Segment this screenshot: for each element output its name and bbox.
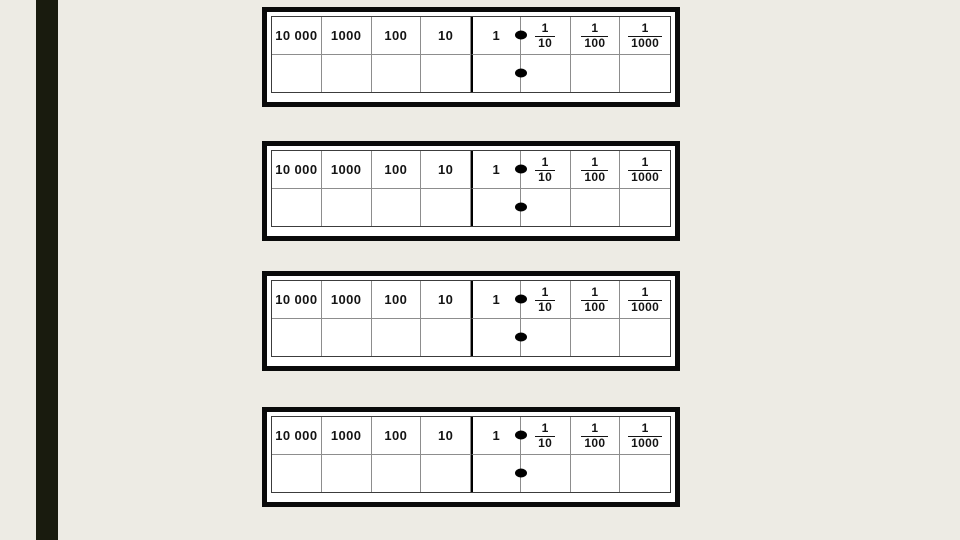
- header-cell-10000: 10 000: [272, 151, 322, 189]
- header-cell-1000: 1000: [322, 17, 372, 55]
- header-cell-hundredths: 1 100: [571, 17, 621, 55]
- header-cell-thousandths: 1 1000: [620, 417, 670, 455]
- header-cell-1: 1: [471, 281, 521, 319]
- fraction-1-100: 1 100: [581, 422, 608, 451]
- header-row: 10 000 1000 100 10 1 1 10 1 100: [272, 281, 670, 319]
- answer-cell: [322, 319, 372, 357]
- answer-cell: [272, 55, 322, 93]
- answer-cell: [620, 189, 670, 227]
- place-value-chart-2: 10 000 1000 100 10 1 1 10 1 100: [262, 141, 680, 241]
- decimal-point-icon: [515, 202, 527, 211]
- header-cell-thousandths: 1 1000: [620, 281, 670, 319]
- fraction-1-10: 1 10: [535, 286, 555, 315]
- answer-cell: [471, 455, 521, 493]
- header-cell-100: 100: [372, 281, 422, 319]
- header-cell-hundredths: 1 100: [571, 417, 621, 455]
- header-cell-10000: 10 000: [272, 281, 322, 319]
- header-cell-100: 100: [372, 151, 422, 189]
- answer-cell: [421, 189, 471, 227]
- fraction-1-1000: 1 1000: [628, 422, 662, 451]
- answer-cell: [372, 455, 422, 493]
- fraction-1-100: 1 100: [581, 156, 608, 185]
- answer-cell: [322, 55, 372, 93]
- fraction-1-1000: 1 1000: [628, 286, 662, 315]
- header-row: 10 000 1000 100 10 1 1 10 1 100: [272, 17, 670, 55]
- header-cell-1: 1: [471, 417, 521, 455]
- answer-cell: [571, 55, 621, 93]
- header-cell-10: 10: [421, 281, 471, 319]
- answer-cell: [322, 189, 372, 227]
- answer-cell: [372, 55, 422, 93]
- answer-cell: [571, 189, 621, 227]
- header-cell-100: 100: [372, 417, 422, 455]
- answer-cell: [372, 189, 422, 227]
- header-cell-tenths: 1 10: [521, 281, 571, 319]
- place-value-table-3: 10 000 1000 100 10 1 1 10 1 100: [271, 280, 671, 357]
- place-value-chart-4: 10 000 1000 100 10 1 1 10 1 100: [262, 407, 680, 507]
- header-row: 10 000 1000 100 10 1 1 10 1 100: [272, 151, 670, 189]
- header-cell-tenths: 1 10: [521, 151, 571, 189]
- decimal-point-icon: [515, 295, 527, 304]
- answer-row: [272, 319, 670, 357]
- answer-cell: [571, 319, 621, 357]
- answer-cell: [272, 189, 322, 227]
- header-cell-1: 1: [471, 151, 521, 189]
- fraction-1-1000: 1 1000: [628, 22, 662, 51]
- place-value-table-4: 10 000 1000 100 10 1 1 10 1 100: [271, 416, 671, 493]
- fraction-1-1000: 1 1000: [628, 156, 662, 185]
- answer-cell: [322, 455, 372, 493]
- place-value-table-1: 10 000 1000 100 10 1 1 10 1 100: [271, 16, 671, 93]
- answer-cell: [372, 319, 422, 357]
- fraction-1-10: 1 10: [535, 22, 555, 51]
- header-cell-10: 10: [421, 417, 471, 455]
- answer-cell: [521, 319, 571, 357]
- header-cell-tenths: 1 10: [521, 417, 571, 455]
- decimal-point-icon: [515, 31, 527, 40]
- answer-cell: [272, 319, 322, 357]
- fraction-1-10: 1 10: [535, 422, 555, 451]
- place-value-table-2: 10 000 1000 100 10 1 1 10 1 100: [271, 150, 671, 227]
- header-cell-1: 1: [471, 17, 521, 55]
- header-cell-hundredths: 1 100: [571, 281, 621, 319]
- header-cell-10000: 10 000: [272, 17, 322, 55]
- decimal-point-icon: [515, 68, 527, 77]
- place-value-chart-3: 10 000 1000 100 10 1 1 10 1 100: [262, 271, 680, 371]
- header-cell-1000: 1000: [322, 151, 372, 189]
- fraction-1-10: 1 10: [535, 156, 555, 185]
- answer-row: [272, 455, 670, 493]
- header-row: 10 000 1000 100 10 1 1 10 1 100: [272, 417, 670, 455]
- answer-cell: [521, 455, 571, 493]
- decimal-point-icon: [515, 468, 527, 477]
- header-cell-thousandths: 1 1000: [620, 151, 670, 189]
- answer-cell: [521, 189, 571, 227]
- place-value-chart-1: 10 000 1000 100 10 1 1 10 1 100: [262, 7, 680, 107]
- answer-cell: [571, 455, 621, 493]
- answer-cell: [421, 455, 471, 493]
- answer-cell: [421, 319, 471, 357]
- answer-cell: [272, 455, 322, 493]
- answer-cell: [471, 55, 521, 93]
- decimal-point-icon: [515, 332, 527, 341]
- decimal-point-icon: [515, 431, 527, 440]
- header-cell-hundredths: 1 100: [571, 151, 621, 189]
- answer-cell: [421, 55, 471, 93]
- answer-cell: [620, 319, 670, 357]
- slide: 10 000 1000 100 10 1 1 10 1 100: [0, 0, 960, 540]
- fraction-1-100: 1 100: [581, 22, 608, 51]
- answer-cell: [471, 319, 521, 357]
- header-cell-100: 100: [372, 17, 422, 55]
- slide-accent-bar: [36, 0, 58, 540]
- header-cell-10: 10: [421, 17, 471, 55]
- decimal-point-icon: [515, 165, 527, 174]
- answer-cell: [521, 55, 571, 93]
- answer-cell: [620, 455, 670, 493]
- fraction-1-100: 1 100: [581, 286, 608, 315]
- header-cell-10: 10: [421, 151, 471, 189]
- answer-row: [272, 189, 670, 227]
- header-cell-1000: 1000: [322, 417, 372, 455]
- header-cell-tenths: 1 10: [521, 17, 571, 55]
- header-cell-thousandths: 1 1000: [620, 17, 670, 55]
- answer-row: [272, 55, 670, 93]
- answer-cell: [620, 55, 670, 93]
- header-cell-1000: 1000: [322, 281, 372, 319]
- header-cell-10000: 10 000: [272, 417, 322, 455]
- answer-cell: [471, 189, 521, 227]
